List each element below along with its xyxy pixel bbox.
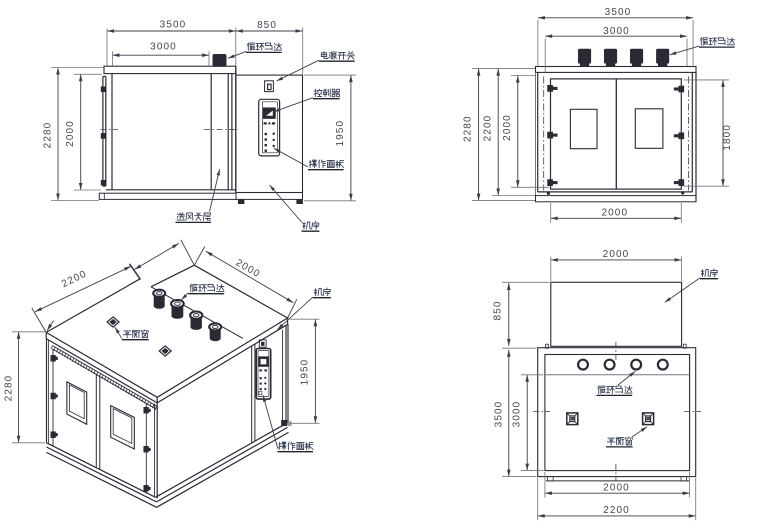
svg-text:2000: 2000: [601, 208, 628, 219]
svg-text:3500: 3500: [493, 401, 504, 428]
svg-text:3500: 3500: [160, 20, 187, 31]
svg-text:3000: 3000: [512, 401, 523, 428]
svg-text:2280: 2280: [3, 375, 14, 402]
svg-text:2000: 2000: [502, 114, 513, 141]
svg-text:3000: 3000: [150, 41, 177, 52]
svg-text:2000: 2000: [603, 482, 630, 493]
svg-text:2000: 2000: [65, 120, 76, 147]
svg-text:850: 850: [257, 20, 277, 31]
svg-text:1950: 1950: [300, 359, 311, 386]
svg-text:1800: 1800: [722, 124, 733, 151]
svg-text:3000: 3000: [603, 26, 630, 37]
svg-text:1950: 1950: [335, 120, 346, 147]
svg-text:2200: 2200: [483, 115, 494, 142]
svg-text:850: 850: [493, 300, 504, 320]
svg-text:2280: 2280: [463, 115, 474, 142]
svg-text:2200: 2200: [603, 505, 630, 516]
svg-text:2280: 2280: [42, 122, 53, 149]
svg-text:2000: 2000: [603, 249, 630, 260]
svg-text:3500: 3500: [605, 7, 632, 18]
